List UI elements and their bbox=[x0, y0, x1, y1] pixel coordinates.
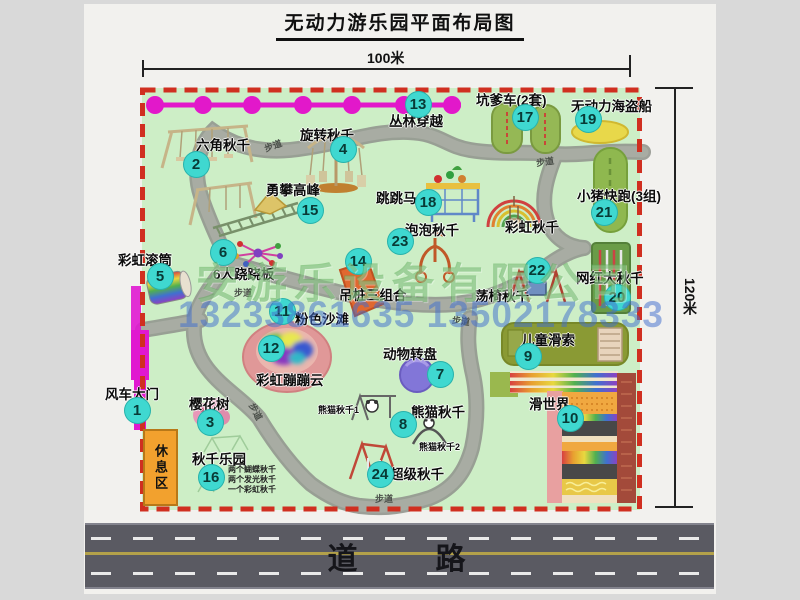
attraction-marker-12: 12 bbox=[258, 335, 285, 362]
sub-note: 一个彩虹秋千 bbox=[228, 485, 276, 495]
attraction-marker-5: 5 bbox=[147, 263, 174, 290]
attraction-label-12: 彩虹蹦蹦云 bbox=[256, 369, 324, 389]
attraction-label-6: 6人跷跷板 bbox=[213, 263, 275, 283]
page-title: 无动力游乐园平面布局图 bbox=[0, 8, 800, 41]
attraction-marker-7: 7 bbox=[427, 361, 454, 388]
attraction-label-17: 坑爹车(2套) bbox=[476, 89, 547, 109]
extra-label-0: 彩虹秋千 bbox=[505, 216, 559, 236]
dim-right-tick-top bbox=[655, 87, 693, 89]
attraction-label-21: 小猪快跑(3组) bbox=[577, 185, 661, 205]
attraction-marker-6: 6 bbox=[210, 239, 237, 266]
rest-area: 休息区 bbox=[143, 429, 178, 506]
attraction-marker-22: 22 bbox=[524, 257, 551, 284]
attraction-marker-21: 21 bbox=[591, 199, 618, 226]
attraction-label-24: 超级秋千 bbox=[390, 463, 444, 483]
path-label-1: 步道 bbox=[535, 154, 555, 169]
attraction-marker-2: 2 bbox=[183, 151, 210, 178]
dim-right-tick-bottom bbox=[655, 506, 693, 508]
attraction-marker-15: 15 bbox=[297, 197, 324, 224]
attraction-marker-3: 3 bbox=[197, 409, 224, 436]
dim-top-tick-right bbox=[629, 55, 631, 77]
attraction-marker-24: 24 bbox=[367, 461, 394, 488]
screenshot-stage: 无动力游乐园平面布局图 100米 120米 bbox=[0, 0, 800, 600]
attraction-label-7: 动物转盘 bbox=[383, 343, 437, 363]
path-label-2: 步道 bbox=[234, 286, 252, 299]
page-title-text: 无动力游乐园平面布局图 bbox=[276, 8, 523, 41]
path-label-4: 步道 bbox=[375, 492, 393, 505]
attraction-label-8: 熊猫秋千 bbox=[411, 401, 465, 421]
attraction-label-18: 跳跳马 bbox=[376, 187, 417, 207]
attraction-marker-16: 16 bbox=[198, 464, 225, 491]
extra-label-2: 熊猫秋千2 bbox=[419, 440, 460, 453]
attraction-marker-4: 4 bbox=[330, 136, 357, 163]
attraction-label-11: 粉色沙滩 bbox=[295, 308, 349, 328]
attraction-marker-9: 9 bbox=[515, 343, 542, 370]
attraction-label-2: 六角秋千 bbox=[196, 134, 250, 154]
dim-right-line bbox=[674, 88, 676, 508]
path-label-5: 步道 bbox=[451, 313, 471, 328]
attraction-sub-notes-16: 两个蝴蝶秋千两个发光秋千一个彩虹秋千 bbox=[228, 465, 276, 495]
attraction-marker-17: 17 bbox=[512, 104, 539, 131]
attraction-label-15: 勇攀高峰 bbox=[266, 179, 320, 199]
attraction-marker-20: 20 bbox=[604, 284, 631, 311]
attraction-marker-23: 23 bbox=[387, 228, 414, 255]
road-label: 道 路 bbox=[85, 525, 714, 587]
attraction-marker-18: 18 bbox=[415, 189, 442, 216]
dim-top-tick-left bbox=[142, 60, 144, 77]
dim-top-line bbox=[142, 68, 631, 70]
attraction-marker-8: 8 bbox=[390, 411, 417, 438]
attraction-marker-11: 11 bbox=[269, 298, 296, 325]
attraction-marker-1: 1 bbox=[124, 397, 151, 424]
attraction-label-22: 荡椅秋千 bbox=[475, 285, 529, 305]
road: 道 路 bbox=[85, 523, 714, 589]
attraction-marker-14: 14 bbox=[345, 248, 372, 275]
dim-right-label: 120米 bbox=[680, 276, 700, 317]
attraction-marker-13: 13 bbox=[405, 91, 432, 118]
attraction-marker-10: 10 bbox=[557, 405, 584, 432]
attraction-label-20: 网红大秋千 bbox=[576, 267, 644, 287]
rest-area-label: 休息区 bbox=[151, 444, 170, 492]
sub-note: 两个发光秋千 bbox=[228, 475, 276, 485]
attraction-label-14: 吊桩三组合 bbox=[339, 284, 407, 304]
attraction-marker-19: 19 bbox=[575, 106, 602, 133]
dim-top-label: 100米 bbox=[362, 48, 409, 68]
sub-note: 两个蝴蝶秋千 bbox=[228, 465, 276, 475]
extra-label-1: 熊猫秋千1 bbox=[318, 403, 359, 416]
